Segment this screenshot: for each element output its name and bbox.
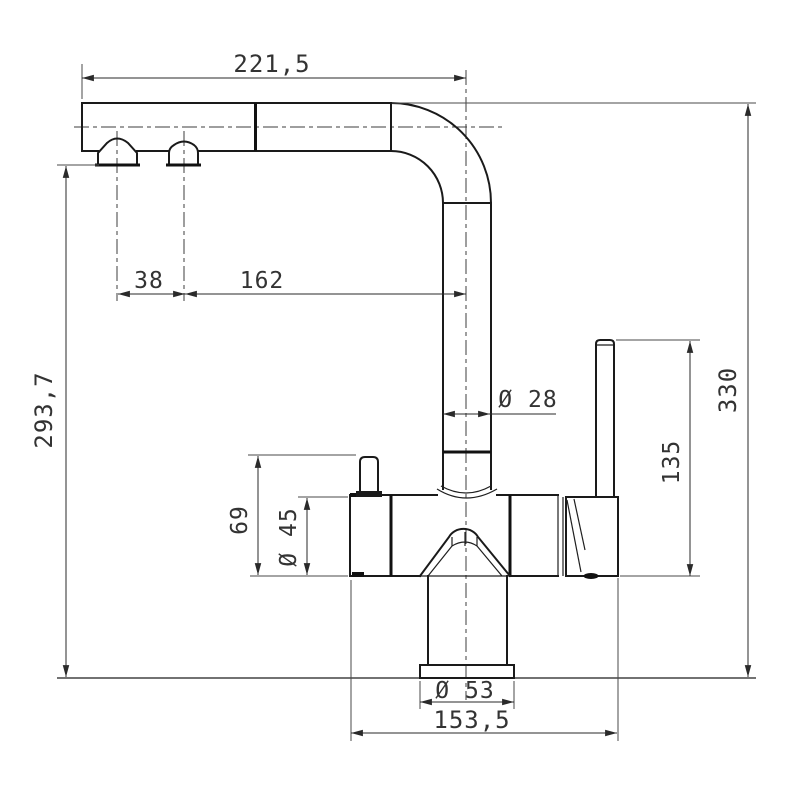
stem <box>428 576 507 665</box>
faucet-dimension-drawing: 221,5 38 162 293,7 Ø 28 330 135 69 Ø 45 … <box>0 0 800 800</box>
mixer-lever-bar <box>596 340 614 497</box>
riser-body-fillet <box>437 486 497 498</box>
label-outlet-to-riser: 162 <box>240 268 285 294</box>
dimension-lines <box>66 78 748 733</box>
base-flange <box>420 665 514 678</box>
extension-lines <box>57 64 756 741</box>
lever-base-nub <box>584 573 599 579</box>
body-bottom-left-mark <box>352 572 364 577</box>
label-outlet-spacing: 38 <box>134 268 164 294</box>
label-body-span: 153,5 <box>433 706 510 734</box>
body-cylinder <box>350 495 558 576</box>
label-total-height: 330 <box>714 367 742 413</box>
spout-bottom-and-riser-left <box>82 151 443 489</box>
filter-knob-collar <box>356 491 382 497</box>
label-body-diameter: Ø 45 <box>276 507 302 566</box>
label-lever-height: 135 <box>659 440 685 485</box>
filter-knob <box>360 457 378 495</box>
label-base-diameter: Ø 53 <box>435 678 494 704</box>
label-spout-reach: 221,5 <box>233 50 310 78</box>
label-riser-diameter: Ø 28 <box>498 387 557 413</box>
lever-base-diagonal <box>567 500 581 572</box>
label-outlet-height: 293,7 <box>30 371 58 448</box>
spout-top-and-riser-right <box>82 103 491 489</box>
label-knob-height: 69 <box>227 505 253 535</box>
technical-drawing-page: 221,5 38 162 293,7 Ø 28 330 135 69 Ø 45 … <box>0 0 800 800</box>
